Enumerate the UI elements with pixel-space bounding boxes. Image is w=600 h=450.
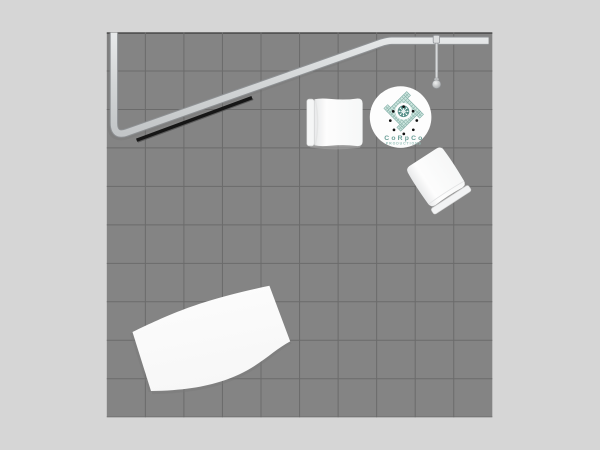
svg-text:PRODUCTIONS: PRODUCTIONS <box>386 141 422 145</box>
